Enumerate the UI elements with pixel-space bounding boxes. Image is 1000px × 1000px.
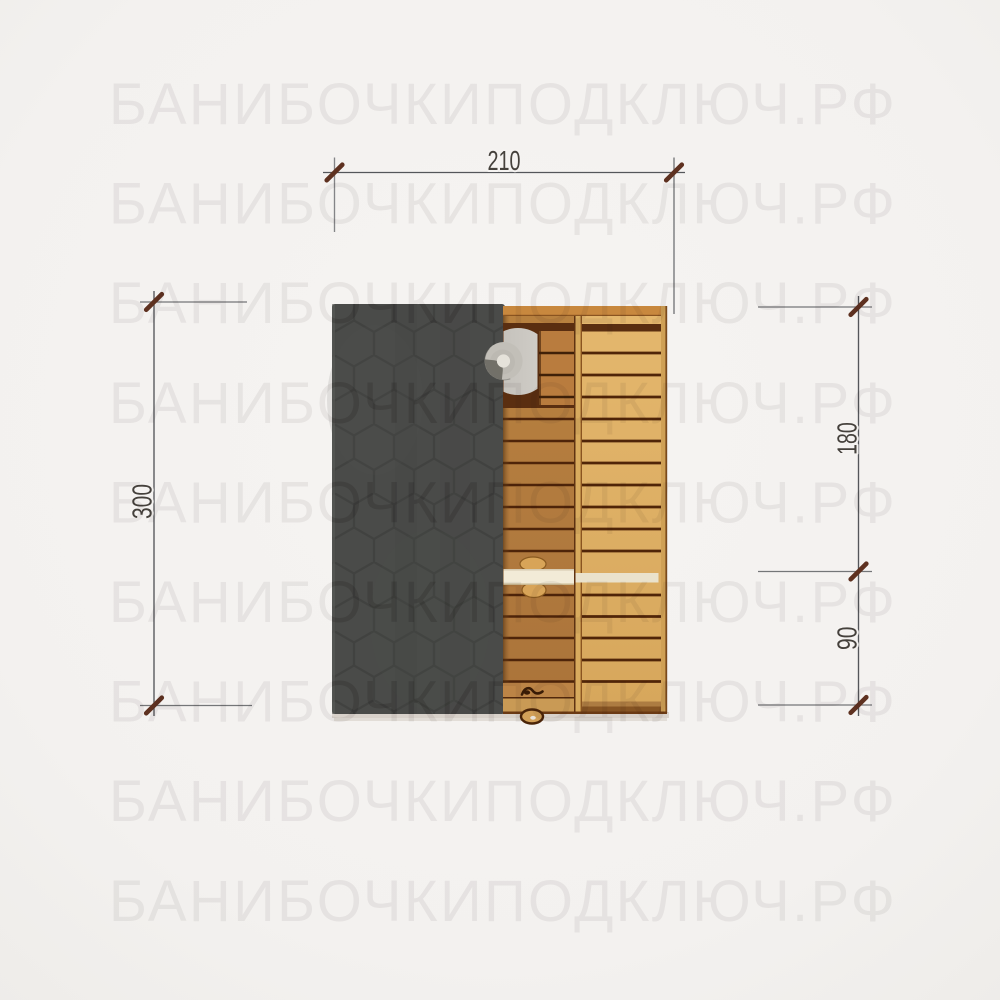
svg-text:БАНИБОЧКИПОДКЛЮЧ.РФ: БАНИБОЧКИПОДКЛЮЧ.РФ — [109, 769, 897, 834]
svg-text:БАНИБОЧКИПОДКЛЮЧ.РФ: БАНИБОЧКИПОДКЛЮЧ.РФ — [109, 172, 897, 237]
svg-text:БАНИБОЧКИПОДКЛЮЧ.РФ: БАНИБОЧКИПОДКЛЮЧ.РФ — [109, 869, 897, 934]
svg-text:БАНИБОЧКИПОДКЛЮЧ.РФ: БАНИБОЧКИПОДКЛЮЧ.РФ — [109, 72, 897, 137]
